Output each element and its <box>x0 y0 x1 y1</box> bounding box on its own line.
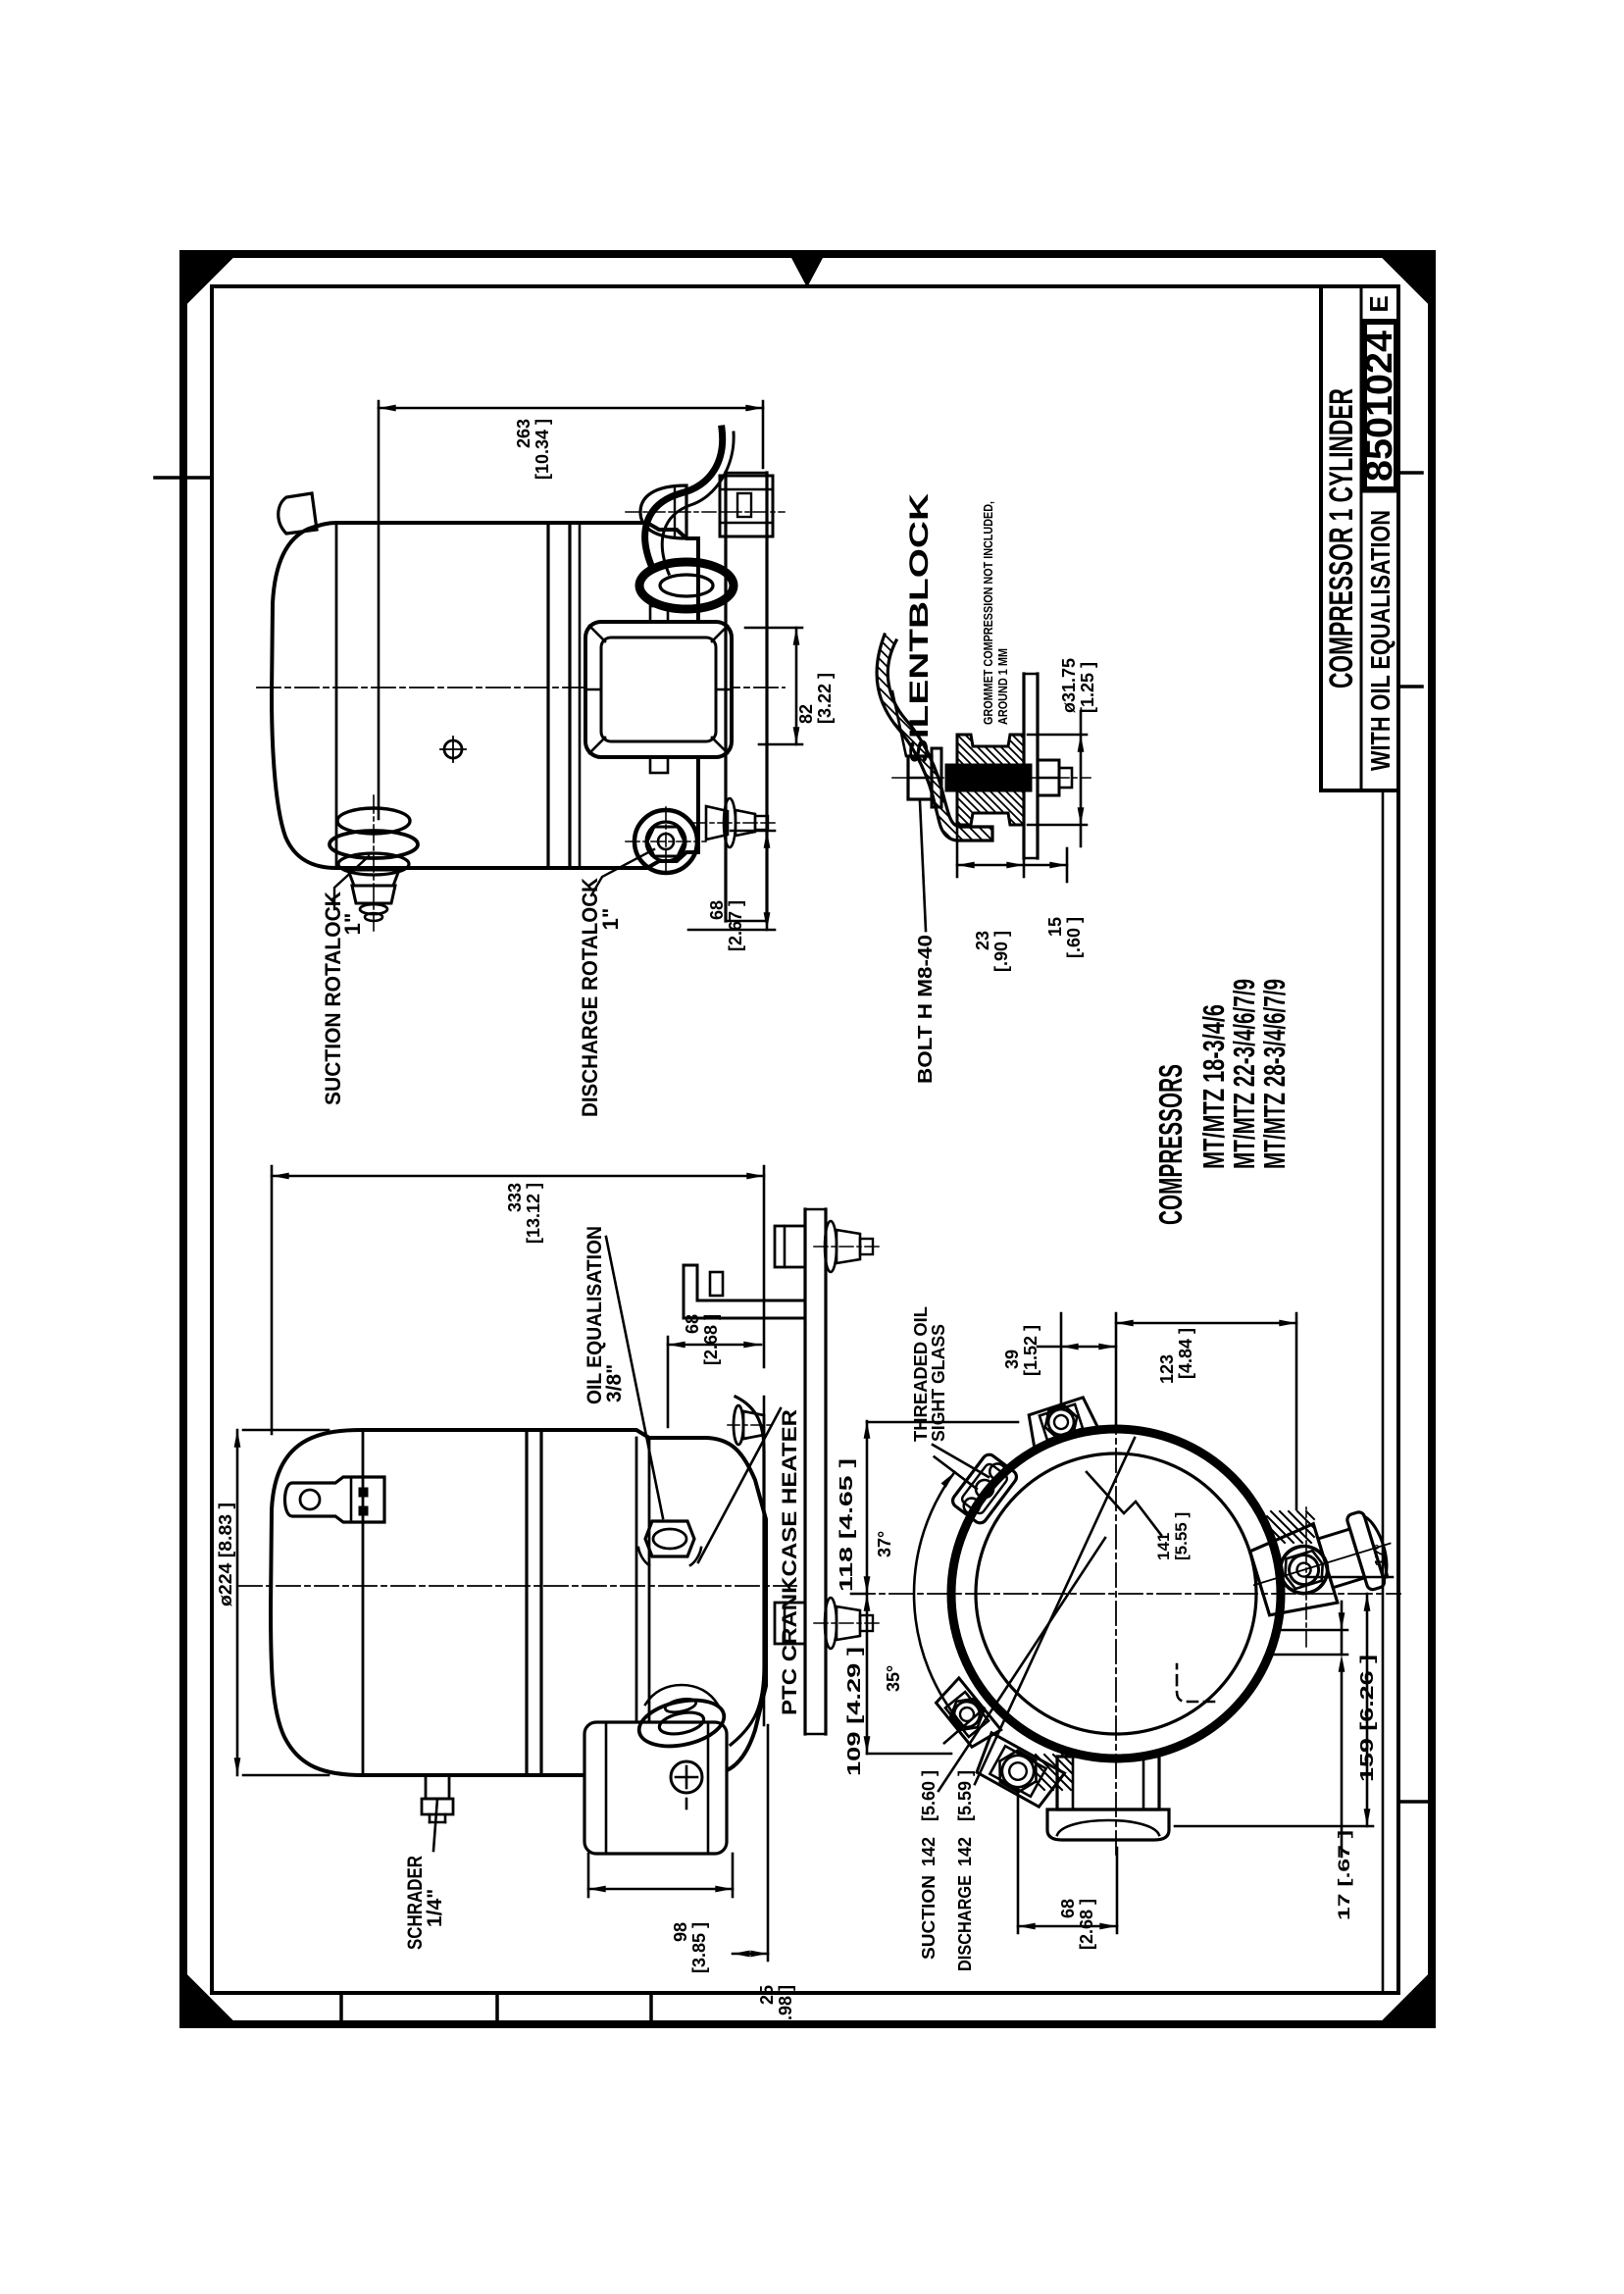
svg-text:SIGHT GLASS: SIGHT GLASS <box>929 1324 948 1442</box>
svg-text:333: 333 <box>505 1183 525 1212</box>
svg-text:[2.68 ]: [2.68 ] <box>1077 1899 1096 1950</box>
svg-text:DISCHARGE: DISCHARGE <box>955 1875 975 1971</box>
svg-text:263: 263 <box>514 419 533 448</box>
svg-text:MT/MTZ 28-3/4/6/7/9: MT/MTZ 28-3/4/6/7/9 <box>1257 979 1292 1169</box>
svg-text:[5.60 ]: [5.60 ] <box>919 1770 939 1821</box>
svg-text:E: E <box>1364 295 1394 312</box>
svg-text:17 [.67 ]: 17 [.67 ] <box>1335 1830 1353 1920</box>
svg-text:[4.84 ]: [4.84 ] <box>1176 1328 1195 1379</box>
svg-text:[5.55 ]: [5.55 ] <box>1172 1512 1191 1560</box>
svg-text:68: 68 <box>1058 1899 1078 1918</box>
svg-text:SUCTION: SUCTION <box>919 1875 939 1960</box>
svg-text:25: 25 <box>757 1985 777 2005</box>
svg-text:BOLT H M8-40: BOLT H M8-40 <box>915 935 937 1084</box>
svg-text:68: 68 <box>683 1314 702 1334</box>
svg-text:35°: 35° <box>884 1665 903 1692</box>
svg-text:[3.22 ]: [3.22 ] <box>815 673 835 724</box>
svg-text:1": 1" <box>340 913 365 936</box>
svg-text:COMPRESSORS: COMPRESSORS <box>1152 1064 1189 1225</box>
svg-text:98: 98 <box>671 1922 690 1942</box>
svg-text:[2.67 ]: [2.67 ] <box>726 900 745 951</box>
svg-text:WITH OIL EQUALISATION: WITH OIL EQUALISATION <box>1365 510 1396 771</box>
svg-text:AROUND 1 MM: AROUND 1 MM <box>995 648 1010 725</box>
svg-text:15: 15 <box>1045 917 1065 937</box>
svg-text:[.60 ]: [.60 ] <box>1064 917 1084 958</box>
svg-text:142: 142 <box>919 1837 939 1866</box>
svg-text:123: 123 <box>1157 1354 1177 1384</box>
svg-text:PTC CRANKCASE HEATER: PTC CRANKCASE HEATER <box>779 1409 801 1715</box>
svg-text:[1.25 ]: [1.25 ] <box>1078 662 1097 713</box>
svg-text:[2.68 ]: [2.68 ] <box>701 1314 721 1365</box>
svg-text:159 [6.26 ]: 159 [6.26 ] <box>1357 1655 1377 1782</box>
svg-text:141: 141 <box>1154 1533 1173 1560</box>
svg-text:82: 82 <box>796 704 816 724</box>
svg-text:[.90 ]: [.90 ] <box>991 931 1011 972</box>
svg-text:[10.34 ]: [10.34 ] <box>533 419 552 480</box>
svg-text:3/8": 3/8" <box>603 1364 626 1402</box>
svg-text:23: 23 <box>973 931 992 950</box>
svg-text:17°: 17° <box>1372 1544 1389 1566</box>
svg-text:142: 142 <box>955 1837 975 1866</box>
svg-text:8501024: 8501024 <box>1359 331 1400 482</box>
svg-text:1": 1" <box>598 908 623 931</box>
svg-text:MT/MTZ 18-3/4/6: MT/MTZ 18-3/4/6 <box>1196 1004 1231 1169</box>
svg-text:39: 39 <box>1002 1350 1022 1369</box>
svg-text:[13.12 ]: [13.12 ] <box>524 1183 543 1244</box>
svg-text:[1.52 ]: [1.52 ] <box>1021 1325 1040 1376</box>
svg-text:ø31.75: ø31.75 <box>1059 658 1079 713</box>
svg-text:[5.59 ]: [5.59 ] <box>955 1770 975 1821</box>
svg-text:[3.85 ]: [3.85 ] <box>689 1922 709 1973</box>
svg-text:118 [4.65 ]: 118 [4.65 ] <box>837 1458 856 1592</box>
svg-text:37°: 37° <box>875 1531 894 1557</box>
svg-text:ø224 [8.83 ]: ø224 [8.83 ] <box>216 1503 235 1606</box>
svg-text:MT/MTZ 22-3/4/6/7/9: MT/MTZ 22-3/4/6/7/9 <box>1227 979 1261 1169</box>
svg-text:COMPRESSOR 1 CYLINDER: COMPRESSOR 1 CYLINDER <box>1323 388 1360 688</box>
svg-text:[.98 ]: [.98 ] <box>776 1985 795 2026</box>
svg-text:109 [4.29 ]: 109 [4.29 ] <box>844 1647 864 1776</box>
svg-text:1/4": 1/4" <box>424 1889 446 1927</box>
svg-text:68: 68 <box>707 900 727 920</box>
svg-text:GROMMET COMPRESSION NOT INCLUD: GROMMET COMPRESSION NOT INCLUDED, <box>981 501 995 725</box>
